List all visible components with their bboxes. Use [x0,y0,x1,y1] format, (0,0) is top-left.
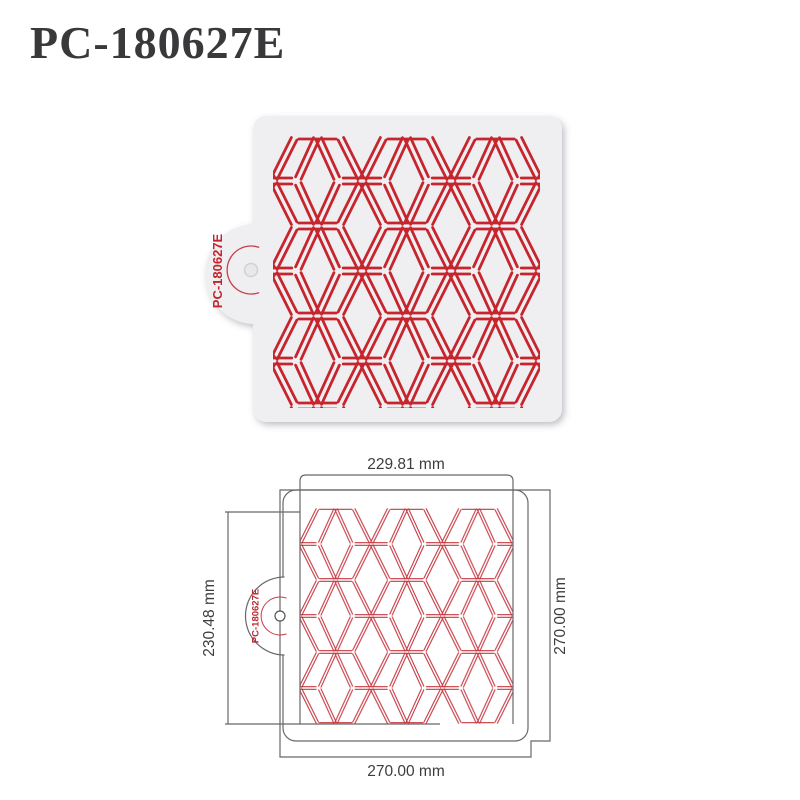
dim-label-left: 230.48 mm [201,579,218,657]
stencil-pattern [273,136,540,408]
dimension-drawing: PC-180627E 229.81 mm 230.48 mm 270.00 mm… [201,456,569,780]
drawing-pattern [300,508,513,724]
dim-label-top: 229.81 mm [367,456,445,473]
stencil-photo: PC-180627E [205,116,562,422]
dim-label-bottom: 270.00 mm [367,763,445,780]
drawing-tab-hole [275,611,285,621]
tab-code-text: PC-180627E [210,233,225,308]
drawing-tab-code: PC-180627E [251,589,262,643]
dim-label-right: 270.00 mm [552,577,569,655]
product-image: PC-180627E PC-180627E 229.81 mm 230.48 m… [0,0,800,800]
tab-hole [245,264,258,277]
